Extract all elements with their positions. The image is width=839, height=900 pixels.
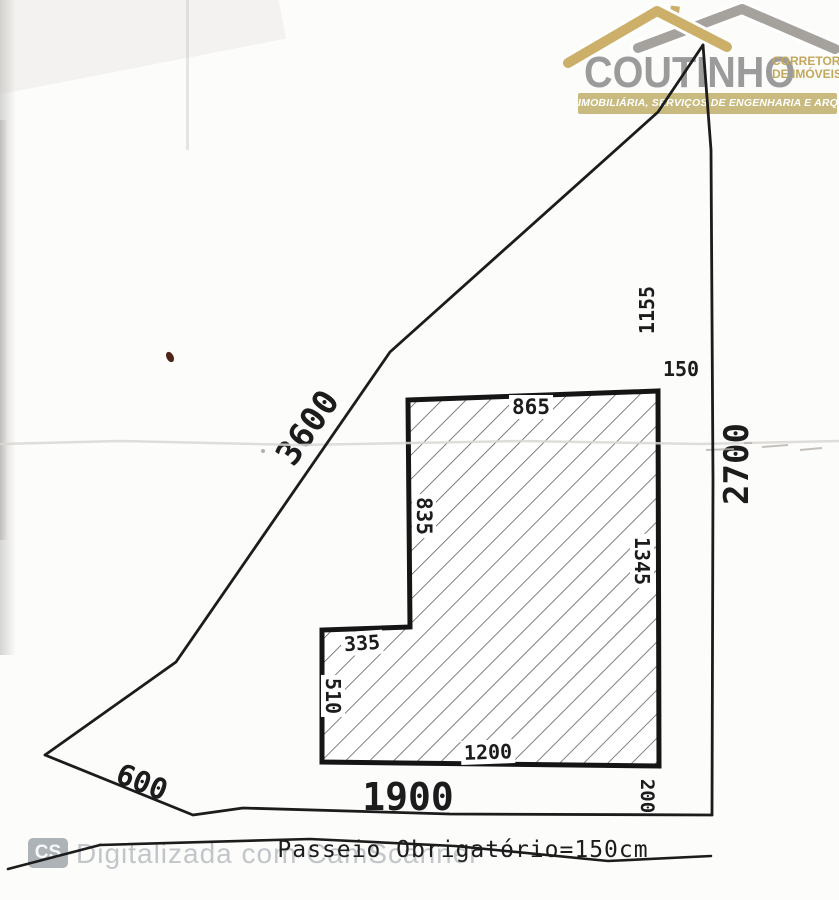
scanned-survey-page: COUTINHO CORRETOR DE IMÓVEIS IMOBILIÁRIA… bbox=[0, 0, 839, 900]
dim-building-step-width: 335 bbox=[340, 630, 384, 657]
dim-building-right-depth: 1345 bbox=[630, 534, 654, 588]
dim-building-top-width: 865 bbox=[509, 395, 553, 419]
dim-building-lower-left-depth: 510 bbox=[321, 675, 345, 717]
building-footprint bbox=[322, 391, 659, 766]
survey-drawing bbox=[0, 0, 839, 900]
sidewalk-line bbox=[8, 839, 711, 869]
ink-speck bbox=[164, 351, 175, 364]
dust-speck bbox=[261, 449, 265, 453]
lot-boundary-right bbox=[703, 45, 713, 815]
dim-building-upper-left-depth: 835 bbox=[412, 494, 436, 538]
dim-building-bottom-width: 1200 bbox=[461, 739, 516, 765]
